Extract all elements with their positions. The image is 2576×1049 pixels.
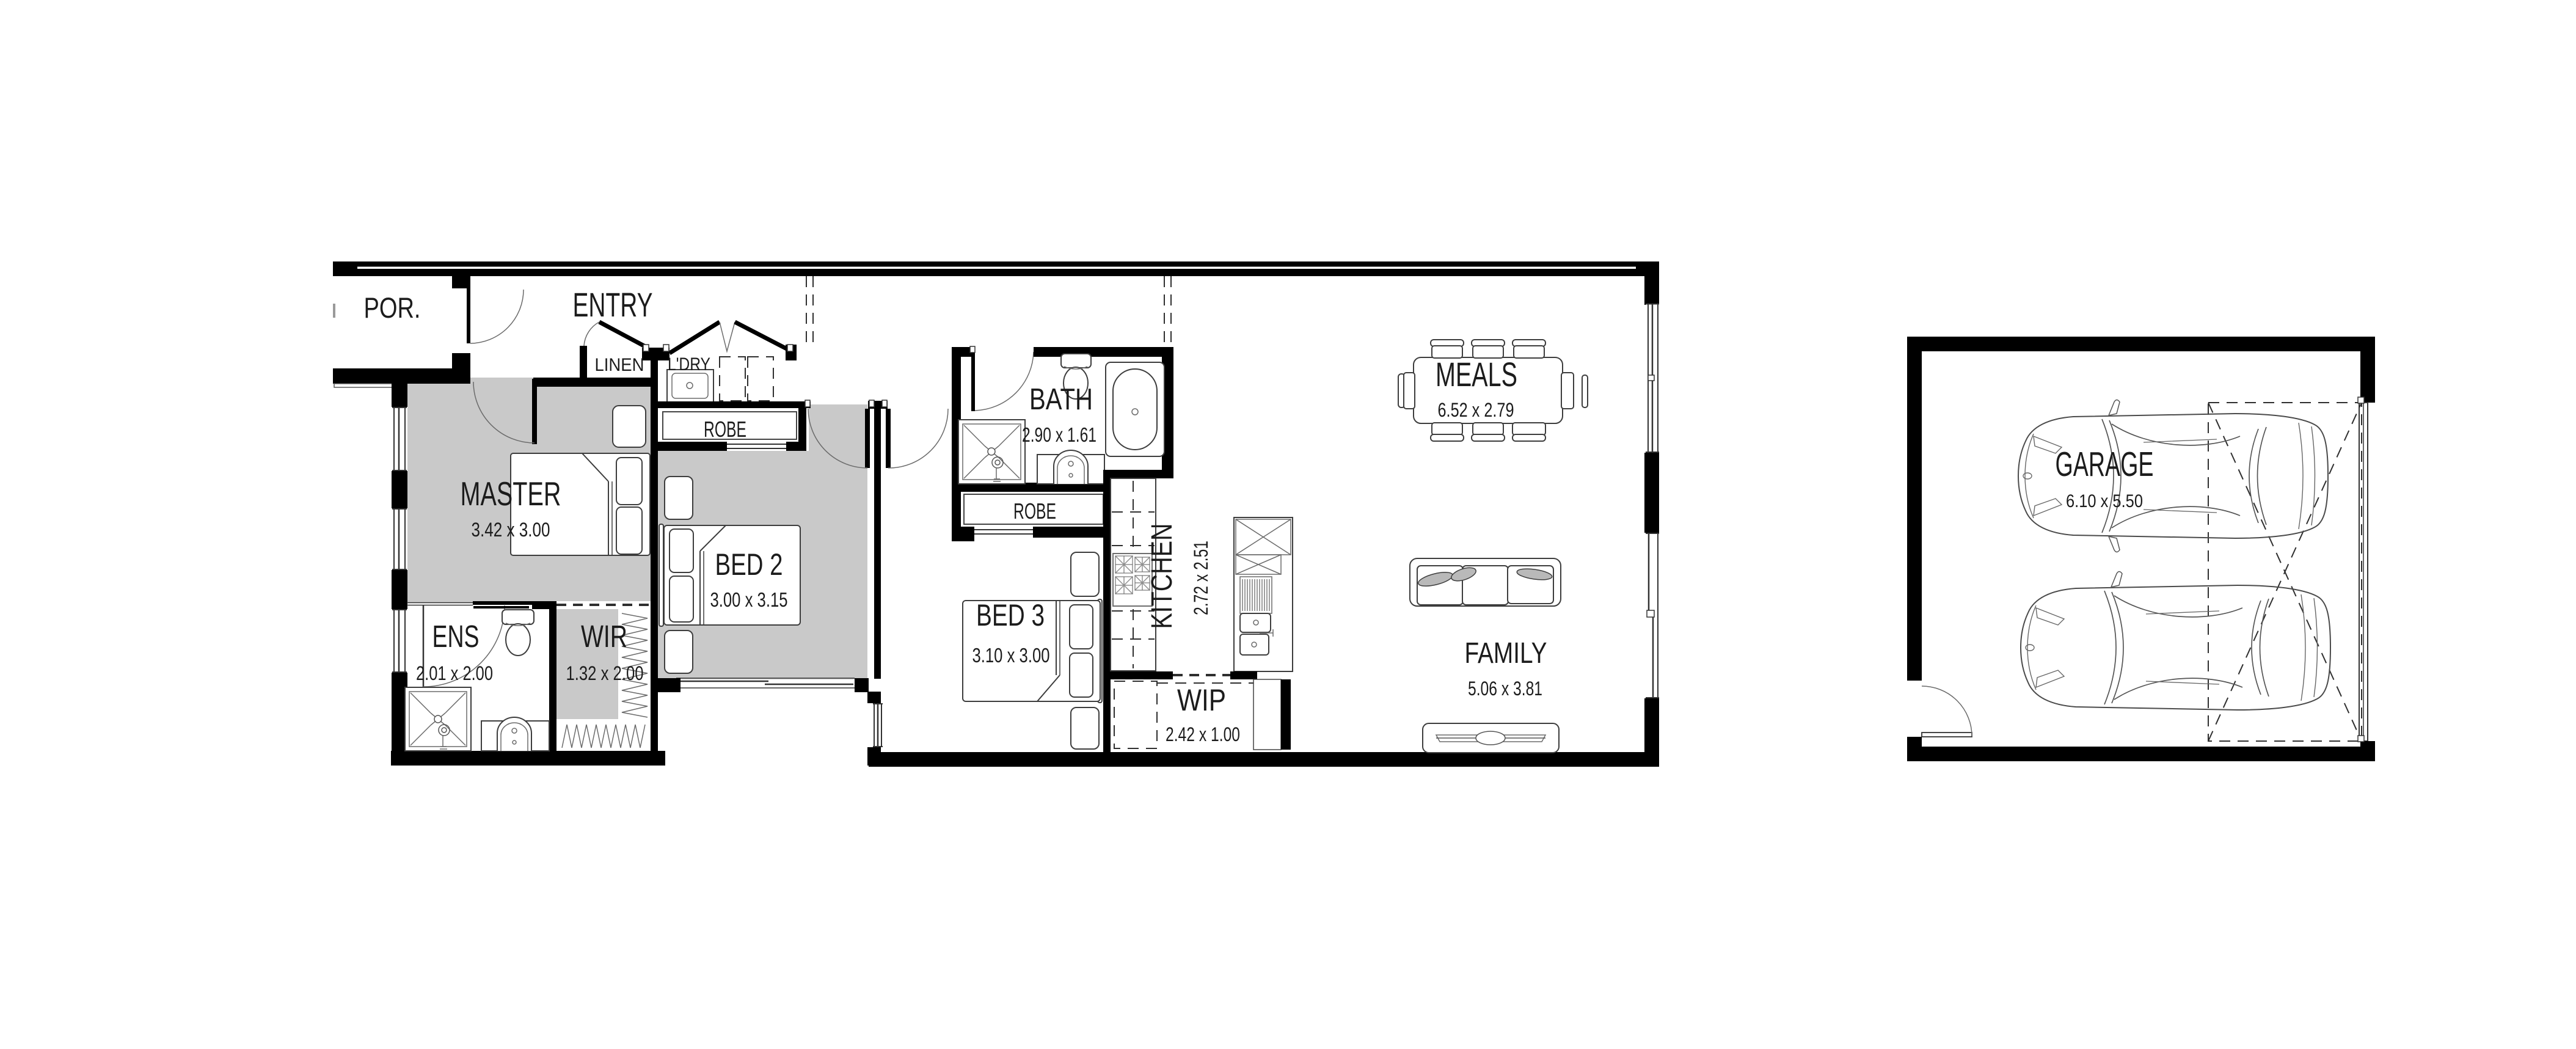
svg-text:BED 2: BED 2 (715, 547, 783, 582)
svg-text:3.42 x 3.00: 3.42 x 3.00 (472, 519, 550, 541)
svg-text:L'DRY: L'DRY (668, 354, 710, 375)
svg-text:5.06 x 3.81: 5.06 x 3.81 (1468, 678, 1542, 700)
svg-text:3.10 x 3.00: 3.10 x 3.00 (972, 644, 1050, 667)
svg-text:2.01 x 2.00: 2.01 x 2.00 (416, 662, 493, 684)
svg-text:WIR: WIR (581, 619, 627, 654)
svg-text:ENTRY: ENTRY (573, 285, 653, 324)
svg-text:MEALS: MEALS (1436, 355, 1517, 393)
svg-text:2.90 x 1.61: 2.90 x 1.61 (1022, 423, 1096, 446)
svg-text:FAMILY: FAMILY (1465, 637, 1547, 670)
svg-text:1.32 x 2.00: 1.32 x 2.00 (566, 662, 644, 684)
svg-text:KITCHEN: KITCHEN (1146, 524, 1178, 629)
svg-text:WIP: WIP (1177, 683, 1226, 717)
svg-text:2.42 x 1.00: 2.42 x 1.00 (1166, 723, 1240, 745)
svg-text:ROBE: ROBE (704, 417, 746, 442)
svg-text:2.72 x 2.51: 2.72 x 2.51 (1190, 541, 1212, 615)
svg-text:BED 3: BED 3 (976, 598, 1045, 632)
svg-text:ROBE: ROBE (1013, 499, 1056, 524)
svg-text:6.52 x 2.79: 6.52 x 2.79 (1438, 399, 1514, 421)
svg-text:MASTER: MASTER (461, 475, 561, 513)
svg-text:ENS: ENS (432, 619, 480, 654)
svg-text:POR.: POR. (364, 291, 421, 324)
svg-text:LINEN: LINEN (595, 355, 644, 375)
svg-text:3.00 x 3.15: 3.00 x 3.15 (710, 588, 788, 611)
svg-text:BATH: BATH (1029, 383, 1093, 416)
svg-text:GARAGE: GARAGE (2056, 445, 2154, 484)
svg-text:6.10 x 5.50: 6.10 x 5.50 (2066, 491, 2143, 511)
